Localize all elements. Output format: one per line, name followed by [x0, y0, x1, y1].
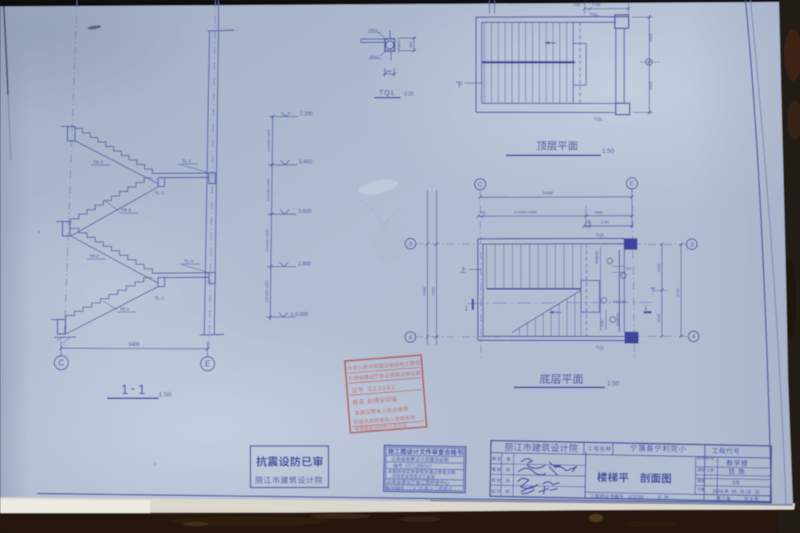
svg-text:1620: 1620 [656, 313, 661, 323]
svg-text:300: 300 [409, 42, 413, 48]
svg-text:3: 3 [690, 242, 694, 249]
svg-text:1: 1 [138, 382, 146, 397]
svg-text:8: 8 [750, 497, 753, 503]
svg-text:240: 240 [574, 2, 581, 7]
svg-text:Φ6@200: Φ6@200 [397, 38, 401, 52]
svg-text:2Φ12: 2Φ12 [369, 29, 378, 33]
svg-text:Φ6@200: Φ6@200 [595, 251, 599, 264]
svg-text:1620: 1620 [648, 80, 653, 90]
svg-text:-: - [131, 381, 136, 396]
svg-text:240: 240 [385, 70, 391, 74]
svg-text:120: 120 [480, 211, 486, 215]
svg-text:2Φ12: 2Φ12 [370, 55, 379, 59]
svg-text::50: :50 [163, 392, 172, 399]
svg-text:12X150=1800: 12X150=1800 [267, 129, 271, 151]
svg-text:1:50: 1:50 [602, 148, 615, 155]
svg-text:1740: 1740 [592, 2, 602, 7]
svg-text:TB-1: TB-1 [120, 307, 130, 312]
svg-text:3.600: 3.600 [299, 209, 312, 215]
svg-text:7.200: 7.200 [300, 111, 313, 117]
svg-text:1620: 1620 [648, 32, 653, 42]
svg-text:2009: 2009 [712, 489, 723, 495]
svg-text:TB-2: TB-2 [93, 160, 103, 165]
svg-text:TQL: TQL [379, 88, 396, 97]
svg-text:1: 1 [644, 305, 648, 312]
svg-text:3240: 3240 [675, 287, 680, 297]
svg-text:TQL: TQL [590, 12, 600, 18]
svg-text:3: 3 [409, 241, 413, 248]
svg-text:1.800: 1.800 [298, 261, 311, 267]
svg-text:C: C [58, 359, 64, 368]
svg-text:12X150=1800: 12X150=1800 [265, 280, 269, 302]
svg-text:TL-1: TL-1 [155, 191, 165, 196]
svg-text:TB-3: TB-3 [121, 208, 131, 213]
svg-text:C: C [478, 182, 483, 189]
svg-text:1050: 1050 [601, 319, 605, 327]
svg-text:TL-1: TL-1 [155, 296, 165, 301]
svg-text:1620: 1620 [656, 263, 661, 273]
svg-text:5400: 5400 [128, 342, 139, 348]
svg-text:TL-1: TL-1 [182, 159, 192, 164]
svg-text:1740: 1740 [601, 220, 609, 224]
svg-text:420: 420 [626, 267, 632, 271]
svg-text:3300: 3300 [431, 286, 436, 296]
svg-text:TQL: TQL [596, 233, 606, 239]
svg-text:123708: 123708 [627, 494, 643, 500]
svg-text:TB-2: TB-2 [89, 254, 99, 259]
svg-text:1: 1 [465, 306, 469, 313]
svg-text:4: 4 [409, 334, 413, 341]
svg-text:1980: 1980 [595, 210, 603, 214]
svg-text:4: 4 [692, 334, 696, 341]
svg-text:12X150=1800: 12X150=1800 [266, 229, 270, 251]
svg-text:E: E [205, 360, 210, 369]
svg-text:12X150=1800: 12X150=1800 [266, 179, 270, 201]
svg-text:5400: 5400 [543, 191, 554, 197]
svg-text:E: E [630, 181, 634, 188]
svg-text:11X300=3300: 11X300=3300 [514, 211, 537, 215]
svg-text:Φ6@130: Φ6@130 [616, 313, 620, 326]
svg-text:± 0.000: ± 0.000 [291, 312, 308, 318]
svg-text:TQL: TQL [594, 117, 604, 123]
svg-text:1: 1 [121, 382, 129, 397]
svg-text:7: 7 [722, 496, 725, 502]
svg-text:08: 08 [731, 489, 737, 495]
svg-text:TL-1: TL-1 [184, 259, 194, 264]
svg-text:3300: 3300 [422, 286, 427, 296]
svg-text:1:20: 1:20 [404, 91, 414, 97]
svg-text:5.400: 5.400 [299, 160, 312, 166]
svg-text:28: 28 [746, 490, 752, 496]
svg-text:1:50: 1:50 [607, 381, 620, 388]
svg-text:TQL: TQL [596, 345, 606, 351]
svg-text:2/8: 2/8 [732, 480, 739, 486]
